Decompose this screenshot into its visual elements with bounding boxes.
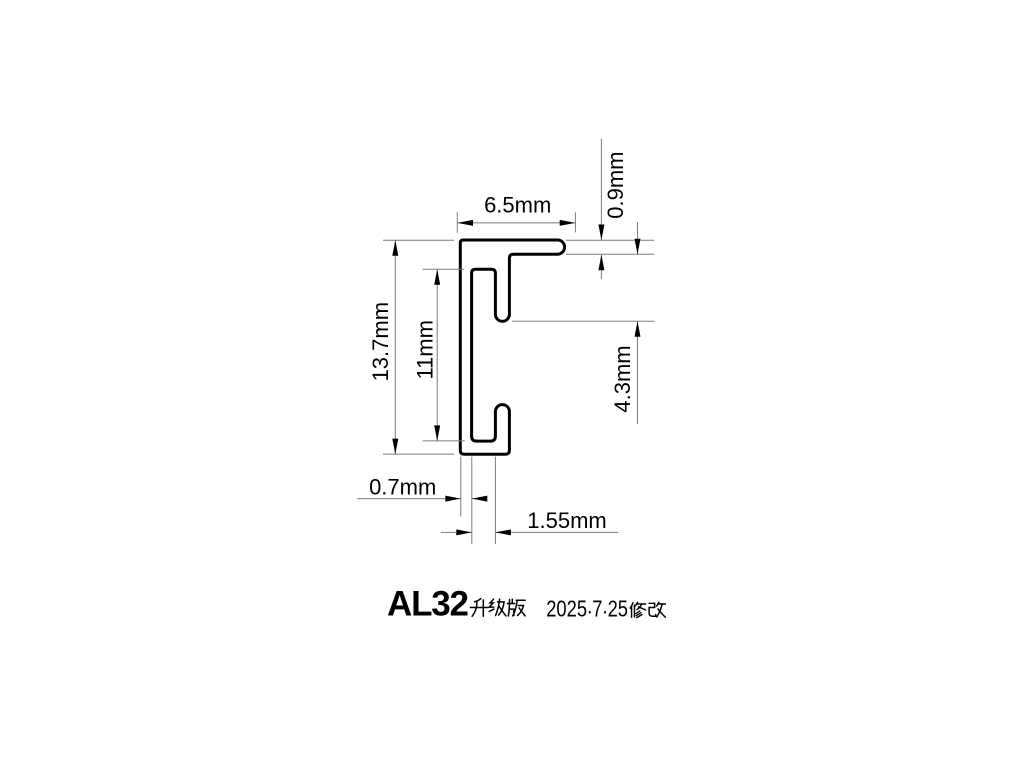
svg-text:13.7mm: 13.7mm — [368, 302, 393, 381]
svg-text:6.5mm: 6.5mm — [484, 192, 551, 217]
svg-text:4.3mm: 4.3mm — [610, 345, 635, 412]
svg-text:11mm: 11mm — [413, 320, 438, 380]
svg-text:1.55mm: 1.55mm — [527, 508, 606, 533]
svg-text:0.7mm: 0.7mm — [369, 475, 436, 500]
svg-text:2025.7.25: 2025.7.25 — [546, 593, 628, 622]
svg-text:0.9mm: 0.9mm — [603, 151, 628, 218]
svg-text:AL32: AL32 — [387, 585, 469, 624]
